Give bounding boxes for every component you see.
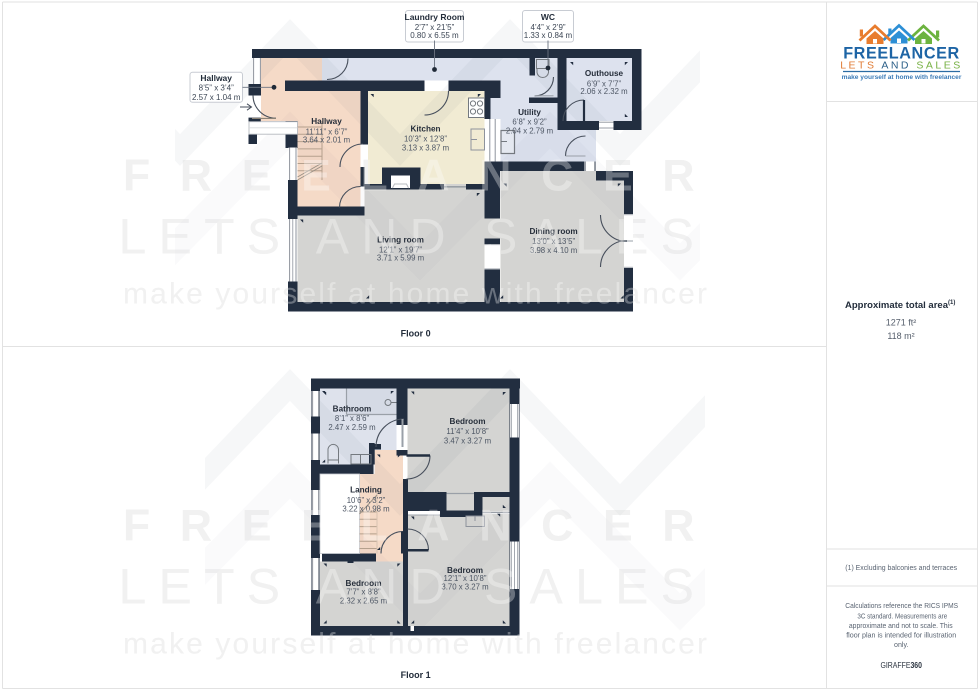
svg-text:118 m²: 118 m² [887, 331, 914, 341]
svg-text:Outhouse: Outhouse [585, 69, 624, 78]
svg-text:LETS AND SALES: LETS AND SALES [840, 60, 963, 72]
svg-text:Laundry Room: Laundry Room [405, 12, 465, 22]
svg-text:3.64 x 2.01 m: 3.64 x 2.01 m [303, 136, 350, 145]
svg-text:1.33 x 0.84 m: 1.33 x 0.84 m [524, 31, 573, 40]
svg-text:WC: WC [541, 12, 555, 22]
svg-text:8’5” x 3’4”: 8’5” x 3’4” [199, 83, 234, 92]
svg-text:11’4” x 10’8”: 11’4” x 10’8” [446, 427, 489, 436]
svg-text:2.47 x 2.59 m: 2.47 x 2.59 m [328, 423, 375, 432]
svg-text:make yourself at home with fre: make yourself at home with freelancer [123, 278, 707, 311]
svg-text:Landing: Landing [350, 486, 382, 495]
svg-text:(1) Excluding balconies and te: (1) Excluding balconies and terraces [845, 563, 957, 572]
svg-text:Calculations reference the RIC: Calculations reference the RICS IPMS [845, 601, 958, 610]
svg-text:only.: only. [894, 640, 909, 649]
svg-text:0.80 x 6.55 m: 0.80 x 6.55 m [410, 31, 459, 40]
svg-text:Hallway: Hallway [311, 117, 342, 126]
svg-text:Utility: Utility [518, 108, 541, 117]
svg-text:Bathroom: Bathroom [333, 404, 372, 413]
svg-text:Floor 1: Floor 1 [401, 670, 431, 680]
svg-text:(1): (1) [948, 300, 955, 306]
svg-text:Hallway: Hallway [200, 73, 232, 83]
svg-text:2.06 x 2.32 m: 2.06 x 2.32 m [580, 87, 627, 96]
svg-text:6’8” x 9’2”: 6’8” x 9’2” [512, 117, 547, 126]
svg-text:10’3” x 12’8”: 10’3” x 12’8” [404, 134, 447, 143]
svg-text:3C standard. Measurements are: 3C standard. Measurements are [857, 611, 947, 620]
svg-text:Bedroom: Bedroom [450, 417, 486, 426]
svg-text:GIRAFFE360: GIRAFFE360 [881, 660, 923, 670]
svg-text:1271 ft²: 1271 ft² [886, 318, 917, 328]
svg-text:3.47 x 3.27 m: 3.47 x 3.27 m [444, 436, 491, 445]
svg-text:make yourself at home with fre: make yourself at home with freelancer [123, 628, 707, 661]
svg-text:Kitchen: Kitchen [410, 124, 440, 133]
svg-text:2.04 x 2.79 m: 2.04 x 2.79 m [506, 127, 553, 136]
svg-text:floor plan is intended for ill: floor plan is intended for illustration [846, 631, 956, 640]
svg-text:approximate and not to scale.: approximate and not to scale. This [849, 621, 953, 630]
svg-text:make yourself at home with fre: make yourself at home with freelancer [842, 74, 962, 81]
svg-text:Floor 0: Floor 0 [401, 328, 431, 338]
svg-text:2.57 x 1.04 m: 2.57 x 1.04 m [192, 93, 241, 102]
svg-text:Approximate total area: Approximate total area [845, 300, 949, 311]
